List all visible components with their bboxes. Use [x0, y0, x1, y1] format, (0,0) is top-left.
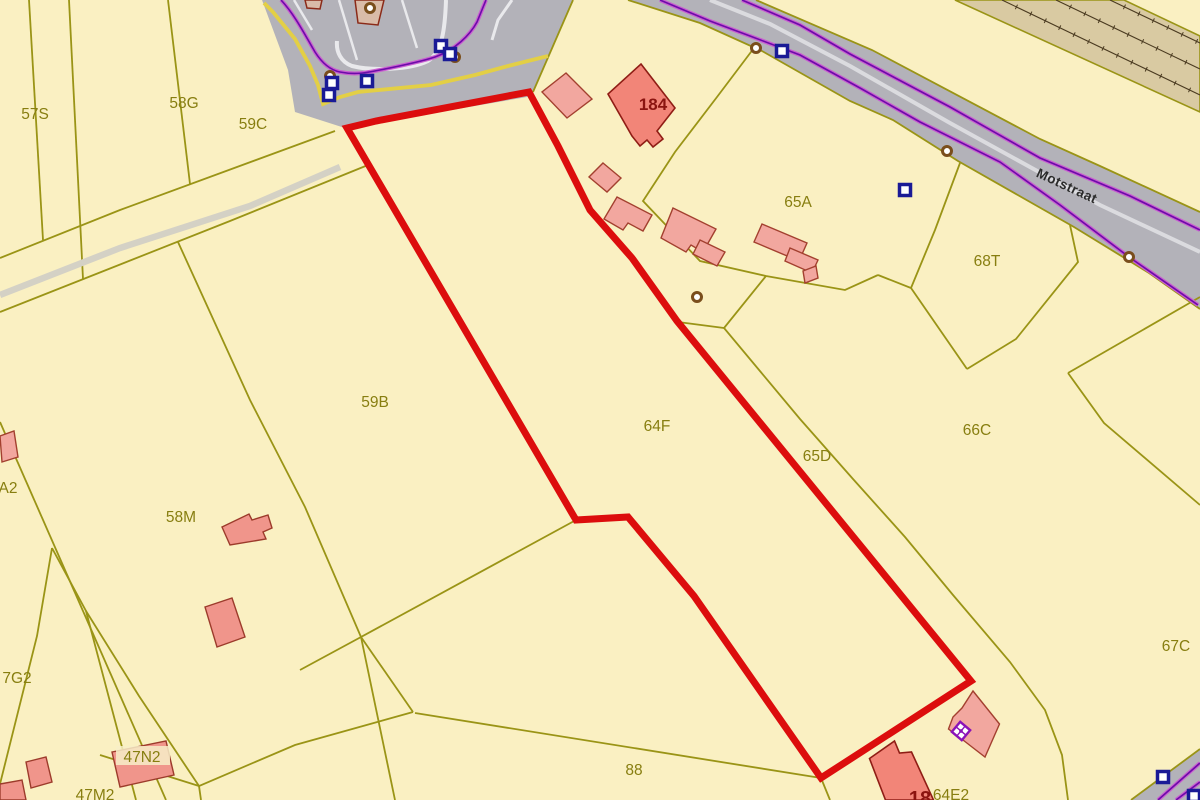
svg-text:67C: 67C	[1162, 638, 1190, 655]
svg-text:65D: 65D	[803, 448, 831, 465]
svg-text:88: 88	[625, 762, 642, 779]
svg-text:47N2: 47N2	[123, 749, 160, 766]
svg-text:65A: 65A	[784, 194, 812, 211]
svg-text:47M2: 47M2	[76, 787, 115, 800]
svg-text:184: 184	[639, 95, 668, 114]
svg-text:A2: A2	[0, 480, 17, 497]
svg-text:68T: 68T	[974, 253, 1001, 270]
svg-text:57S: 57S	[21, 106, 49, 123]
svg-text:18: 18	[909, 788, 931, 800]
svg-text:7G2: 7G2	[2, 670, 31, 687]
svg-text:59C: 59C	[239, 116, 267, 133]
svg-text:64E2: 64E2	[933, 787, 969, 800]
svg-text:58G: 58G	[169, 95, 198, 112]
svg-text:64F: 64F	[644, 418, 671, 435]
svg-text:58M: 58M	[166, 509, 196, 526]
svg-text:59B: 59B	[361, 394, 389, 411]
svg-text:66C: 66C	[963, 422, 991, 439]
